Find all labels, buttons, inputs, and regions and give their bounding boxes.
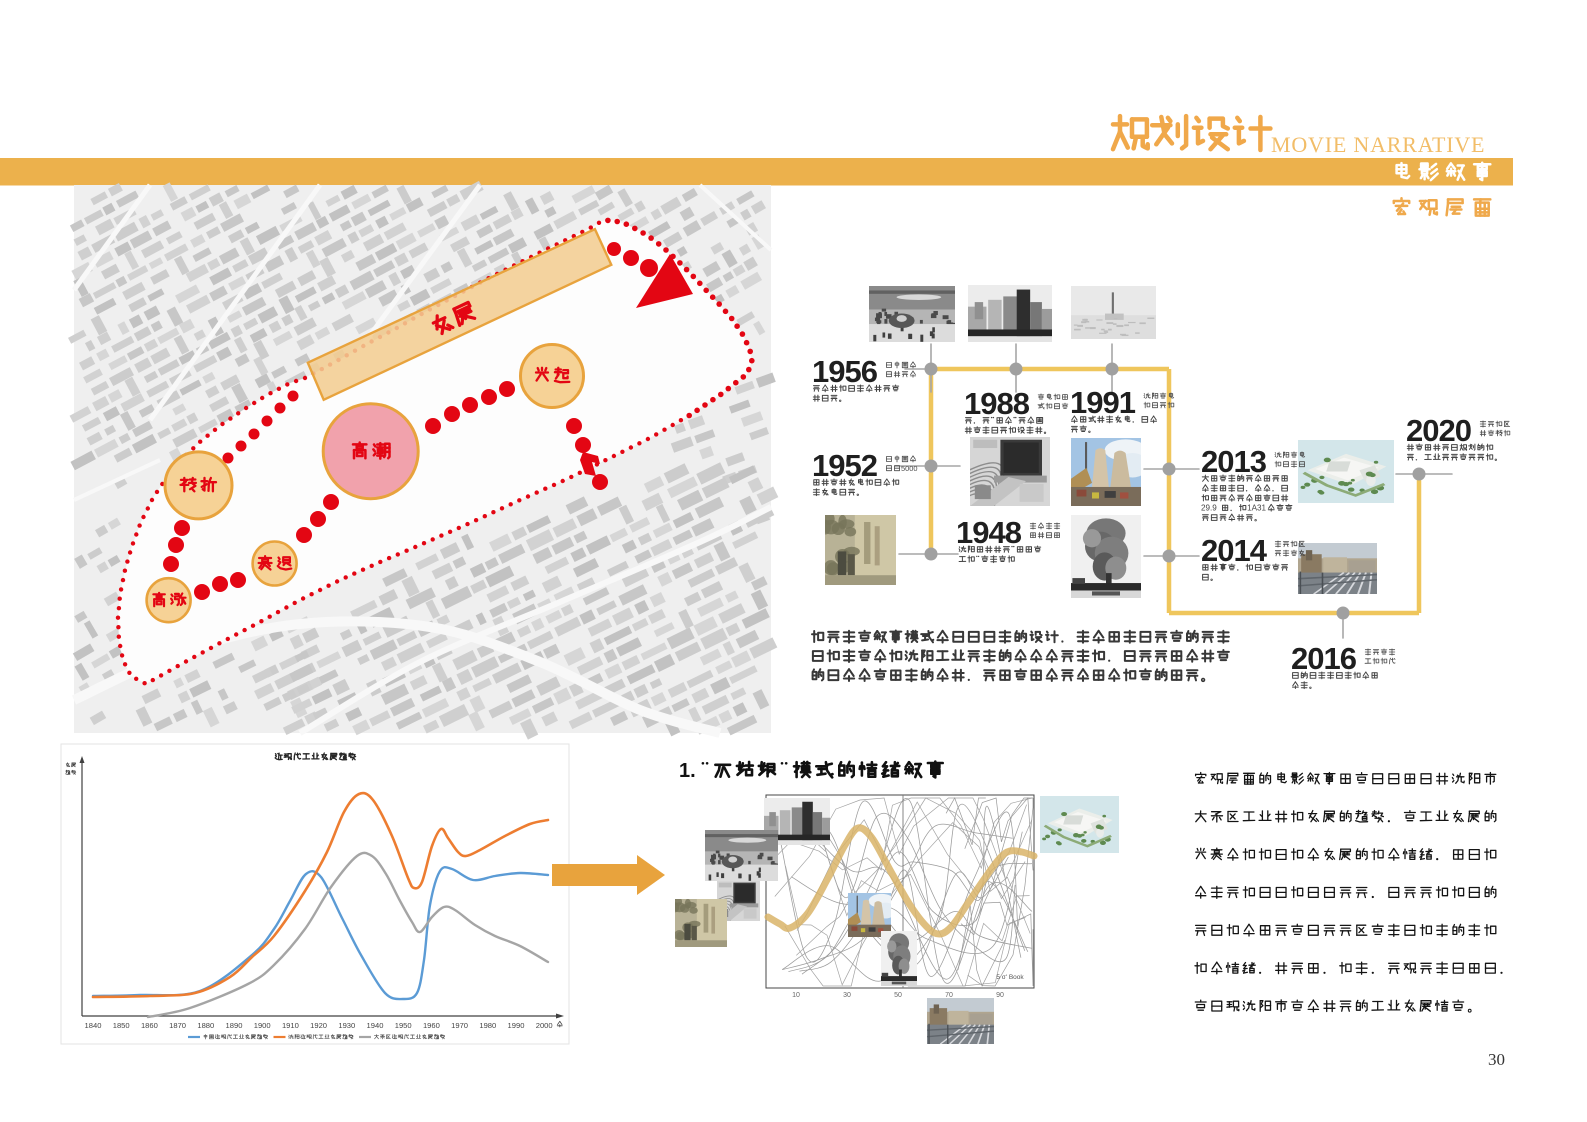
- svg-text:5 σ' Book: 5 σ' Book: [996, 974, 1024, 981]
- svg-text:10: 10: [792, 992, 800, 999]
- svg-text:1920: 1920: [310, 1021, 327, 1030]
- svg-text:2000: 2000: [536, 1021, 553, 1030]
- svg-text:1950: 1950: [395, 1021, 412, 1030]
- svg-text:5000: 5000: [901, 464, 917, 473]
- svg-text:1890: 1890: [226, 1021, 243, 1030]
- svg-text:30: 30: [1488, 1050, 1505, 1069]
- svg-text:1910: 1910: [282, 1021, 299, 1030]
- svg-text:1940: 1940: [367, 1021, 384, 1030]
- svg-text:1948: 1948: [956, 515, 1022, 550]
- svg-text:1870: 1870: [169, 1021, 186, 1030]
- svg-text:30: 30: [843, 992, 851, 999]
- svg-text:1956: 1956: [812, 354, 878, 389]
- svg-text:1900: 1900: [254, 1021, 271, 1030]
- svg-text:1960: 1960: [423, 1021, 440, 1030]
- svg-text:MOVIE NARRATIVE: MOVIE NARRATIVE: [1271, 132, 1485, 157]
- svg-text:70: 70: [945, 992, 953, 999]
- svg-text:1930: 1930: [338, 1021, 355, 1030]
- svg-text:1A31: 1A31: [1247, 504, 1266, 513]
- svg-text:1860: 1860: [141, 1021, 158, 1030]
- svg-text:1970: 1970: [451, 1021, 468, 1030]
- svg-text:1880: 1880: [197, 1021, 214, 1030]
- svg-text:1840: 1840: [85, 1021, 102, 1030]
- svg-text:2014: 2014: [1201, 533, 1268, 568]
- svg-text:29.9: 29.9: [1201, 504, 1217, 513]
- svg-text:90: 90: [996, 992, 1004, 999]
- svg-text:2013: 2013: [1201, 444, 1267, 479]
- svg-text:1.: 1.: [679, 760, 696, 782]
- svg-text:2016: 2016: [1291, 641, 1357, 676]
- svg-text:1850: 1850: [113, 1021, 130, 1030]
- svg-text:50: 50: [894, 992, 902, 999]
- svg-text:1990: 1990: [508, 1021, 525, 1030]
- svg-text:2020: 2020: [1406, 413, 1471, 448]
- svg-text:1980: 1980: [479, 1021, 496, 1030]
- svg-text:1988: 1988: [964, 386, 1030, 421]
- svg-text:1952: 1952: [812, 448, 877, 483]
- svg-text:1991: 1991: [1070, 385, 1136, 420]
